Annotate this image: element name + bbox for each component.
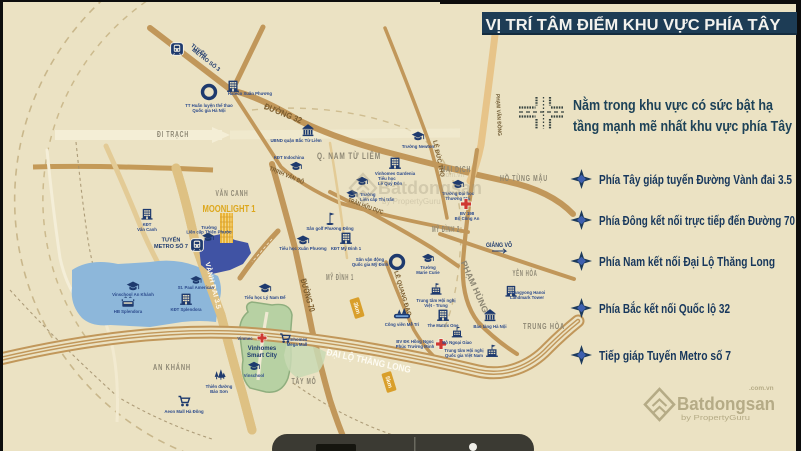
svg-text:Q. NAM TỪ LIÊM: Q. NAM TỪ LIÊM — [317, 150, 381, 161]
svg-text:tầng mạnh mẽ nhất khu vực phía: tầng mạnh mẽ nhất khu vực phía Tây — [573, 118, 793, 135]
svg-text:Quốc gia Hà Nội: Quốc gia Hà Nội — [192, 108, 225, 113]
svg-text:Phía Tây giáp tuyến Đường Vành: Phía Tây giáp tuyến Đường Vành đai 3.5 — [599, 173, 792, 187]
svg-text:KĐT Splendora: KĐT Splendora — [170, 307, 202, 312]
svg-text:The Matrix One: The Matrix One — [427, 323, 459, 328]
svg-text:MỸ ĐÌNH 2: MỸ ĐÌNH 2 — [432, 225, 460, 234]
svg-text:Mega Mall: Mega Mall — [287, 342, 308, 347]
svg-text:Bộ Ngoại Giao: Bộ Ngoại Giao — [442, 340, 472, 345]
svg-text:UBND quận Bắc Từ Liêm: UBND quận Bắc Từ Liêm — [270, 138, 321, 143]
svg-text:by PropertyGuru: by PropertyGuru — [681, 413, 750, 422]
svg-text:TUYẾN: TUYẾN — [162, 237, 181, 244]
svg-text:Vân Canh: Vân Canh — [137, 227, 157, 232]
svg-text:Vinhomes: Vinhomes — [248, 346, 277, 352]
svg-text:TRUNG HÒA: TRUNG HÒA — [523, 322, 565, 331]
svg-text:by PropertyGuru: by PropertyGuru — [382, 197, 441, 206]
svg-text:Batdongsan: Batdongsan — [677, 393, 775, 414]
svg-text:MOONLIGHT 1: MOONLIGHT 1 — [203, 203, 256, 215]
svg-text:Vinhomes Gardenia: Vinhomes Gardenia — [375, 171, 416, 176]
svg-text:VỊ TRÍ TÂM ĐIỂM KHU VỰC PHÍA T: VỊ TRÍ TÂM ĐIỂM KHU VỰC PHÍA TÂY — [486, 15, 781, 34]
svg-text:Bộ Công An: Bộ Công An — [455, 216, 480, 221]
svg-text:Trường Newton: Trường Newton — [402, 144, 435, 149]
svg-text:Aeon Mall Hà Đông: Aeon Mall Hà Đông — [164, 409, 204, 414]
svg-text:GIẢNG VÕ: GIẢNG VÕ — [486, 242, 512, 249]
svg-text:Việt - Trung: Việt - Trung — [424, 303, 448, 308]
svg-text:Marie Curie: Marie Curie — [416, 270, 440, 275]
svg-text:Phía Bắc kết nối Quốc lộ 32: Phía Bắc kết nối Quốc lộ 32 — [599, 301, 730, 316]
svg-text:.com.vn: .com.vn — [440, 172, 465, 179]
svg-text:YÊN HÒA: YÊN HÒA — [513, 269, 538, 278]
svg-text:HB Splendora: HB Splendora — [114, 309, 143, 314]
svg-text:Bảo tàng Hà Nội: Bảo tàng Hà Nội — [473, 324, 506, 329]
svg-text:KĐT Indochina: KĐT Indochina — [274, 155, 305, 160]
svg-text:Vinmec: Vinmec — [237, 336, 253, 341]
svg-text:METRO SỐ 7: METRO SỐ 7 — [154, 243, 188, 250]
svg-text:Phúc Trường Minh: Phúc Trường Minh — [396, 344, 435, 349]
svg-text:KĐT Mỹ Đình 1: KĐT Mỹ Đình 1 — [331, 246, 362, 251]
svg-text:Smart City: Smart City — [247, 353, 278, 359]
svg-text:Tiểu học Xuân Phương: Tiểu học Xuân Phương — [279, 246, 327, 251]
svg-text:Tiểu học Lý Nam Đế: Tiểu học Lý Nam Đế — [245, 295, 287, 300]
svg-text:MỸ ĐÌNH 1: MỸ ĐÌNH 1 — [326, 273, 354, 282]
svg-text:VĂN CANH: VĂN CANH — [216, 189, 249, 198]
svg-text:Batdongsan: Batdongsan — [378, 178, 482, 198]
svg-text:Vinschool An Khánh: Vinschool An Khánh — [112, 292, 154, 297]
svg-text:.com.vn: .com.vn — [749, 385, 774, 392]
svg-text:HỒ TÙNG MẬU: HỒ TÙNG MẬU — [500, 173, 548, 183]
svg-text:AN KHÁNH: AN KHÁNH — [153, 363, 191, 372]
svg-text:Sân golf Phương Đông: Sân golf Phương Đông — [306, 226, 354, 231]
svg-text:TÂY MỖ: TÂY MỖ — [292, 377, 317, 386]
svg-text:Tiếp giáp Tuyến Metro số 7: Tiếp giáp Tuyến Metro số 7 — [599, 349, 731, 363]
svg-text:St. Paul American: St. Paul American — [178, 285, 215, 290]
svg-text:Bảo Sơn: Bảo Sơn — [210, 389, 228, 394]
svg-text:Phía Đông kết nối trực tiếp đế: Phía Đông kết nối trực tiếp đến Đường 70 — [599, 214, 795, 228]
svg-text:Liên cấp Thiên Phước: Liên cấp Thiên Phước — [186, 230, 232, 235]
svg-text:Công viên Mễ Trì: Công viên Mễ Trì — [385, 322, 419, 327]
svg-text:Nằm trong khu vực có sức bật h: Nằm trong khu vực có sức bật hạ — [573, 96, 774, 114]
svg-text:Quốc gia Việt Nam: Quốc gia Việt Nam — [445, 353, 483, 358]
svg-text:Phía Nam kết nối Đại Lộ Thăng: Phía Nam kết nối Đại Lộ Thăng Long — [599, 255, 775, 269]
svg-text:ĐI TRẠCH: ĐI TRẠCH — [157, 130, 189, 139]
svg-text:Vinschool: Vinschool — [244, 373, 264, 378]
svg-text:Hateco Xuân Phương: Hateco Xuân Phương — [228, 91, 273, 96]
svg-text:Quốc gia Mỹ Đình: Quốc gia Mỹ Đình — [352, 262, 389, 267]
svg-text:Landmark Tower: Landmark Tower — [510, 295, 544, 300]
